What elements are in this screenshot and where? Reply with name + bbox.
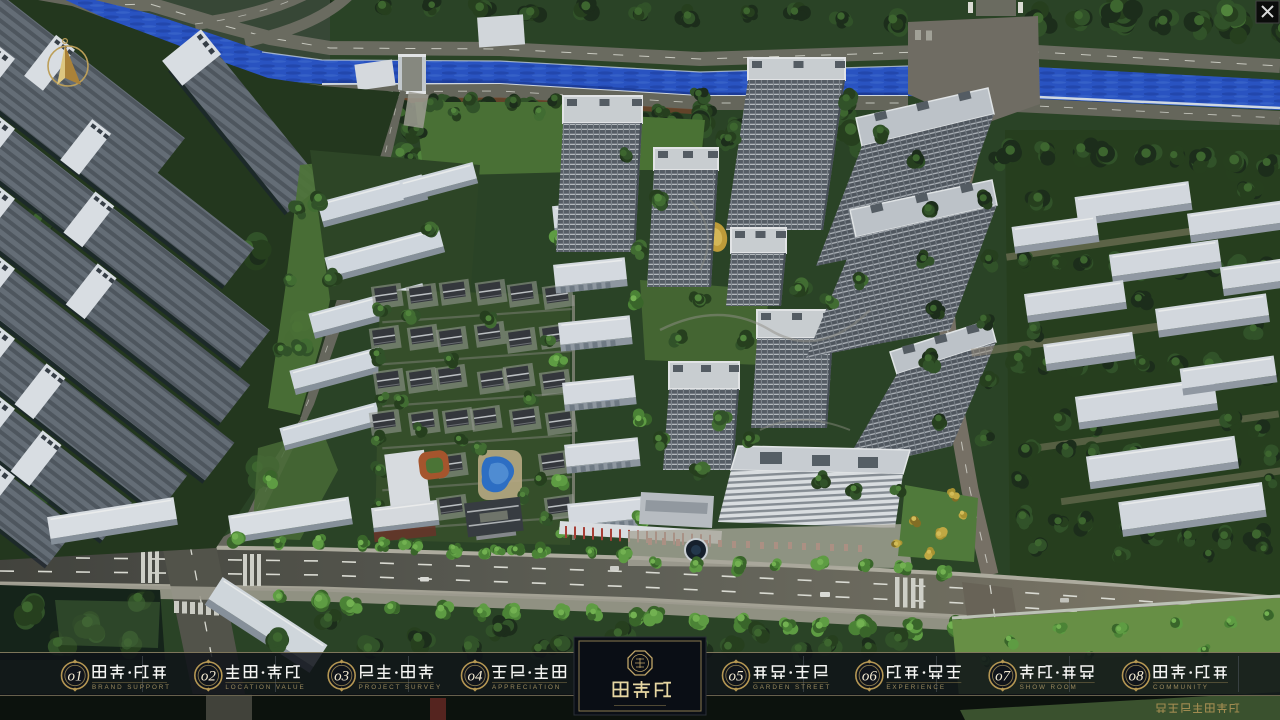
svg-text:o1: o1 bbox=[68, 669, 83, 685]
svg-text:GARDEN STREET: GARDEN STREET bbox=[753, 684, 831, 691]
svg-text:o8: o8 bbox=[1128, 669, 1144, 685]
svg-text:o5: o5 bbox=[729, 669, 745, 685]
svg-text:COMMUNITY: COMMUNITY bbox=[1153, 684, 1209, 691]
svg-text:o7: o7 bbox=[995, 669, 1012, 685]
svg-text:o3: o3 bbox=[334, 669, 349, 685]
svg-text:o6: o6 bbox=[862, 669, 878, 685]
svg-text:LOCATION VALUE: LOCATION VALUE bbox=[225, 684, 305, 691]
svg-text:o4: o4 bbox=[467, 669, 483, 685]
svg-text:BRAND SUPPORT: BRAND SUPPORT bbox=[92, 684, 171, 691]
svg-text:EXPERIENCE: EXPERIENCE bbox=[886, 684, 946, 691]
svg-text:o2: o2 bbox=[201, 669, 217, 685]
svg-text:APPRECIATION: APPRECIATION bbox=[492, 684, 561, 691]
svg-text:SHOW ROOM: SHOW ROOM bbox=[1020, 684, 1078, 691]
svg-text:PROJECT SURVEY: PROJECT SURVEY bbox=[359, 684, 442, 691]
